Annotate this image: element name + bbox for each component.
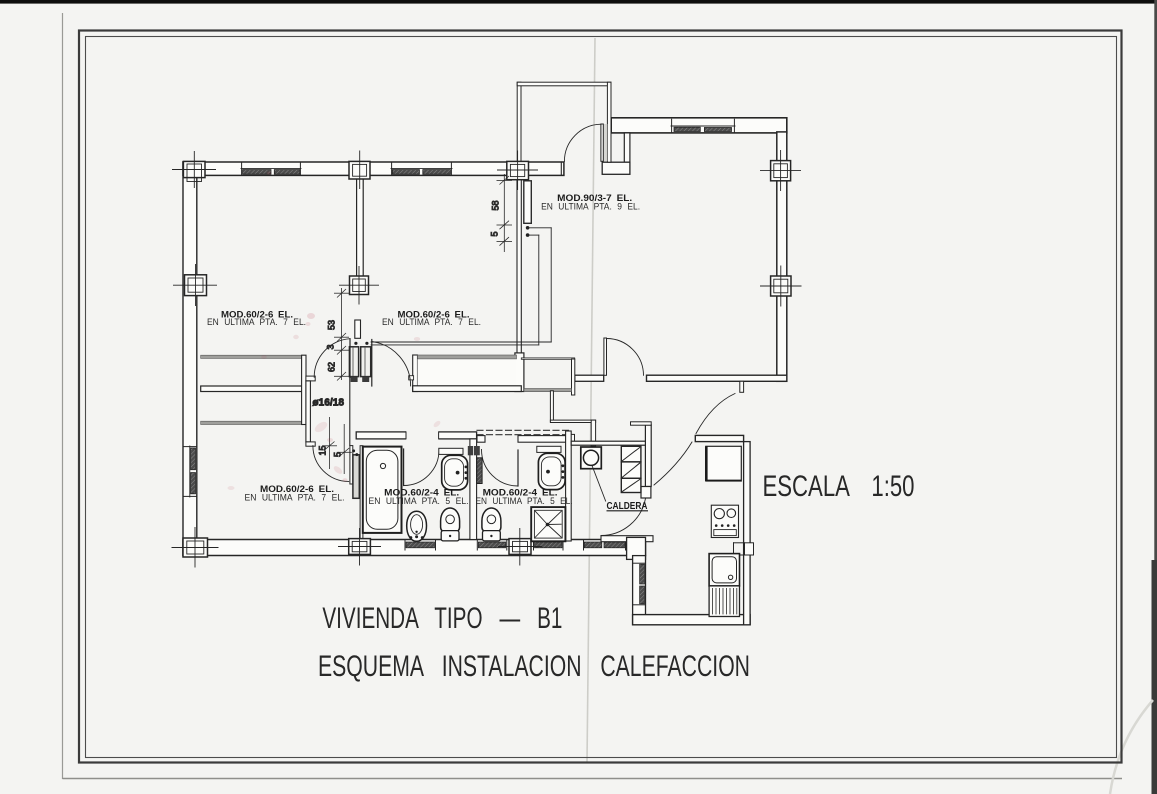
- svg-text:5: 5: [333, 452, 343, 457]
- svg-text:EN ULTIMA PTA. 7 EL.: EN ULTIMA PTA. 7 EL.: [382, 317, 481, 328]
- svg-text:62: 62: [327, 362, 337, 372]
- svg-text:3: 3: [326, 344, 336, 349]
- svg-text:ø16/18: ø16/18: [313, 398, 345, 409]
- svg-text:VIVIENDA TIPO — B1: VIVIENDA TIPO — B1: [322, 602, 562, 635]
- svg-text:EN ULTIMA PTA. 9 EL.: EN ULTIMA PTA. 9 EL.: [541, 201, 640, 212]
- svg-text:EN ULTIMA PTA. 5 EL.: EN ULTIMA PTA. 5 EL.: [476, 496, 573, 507]
- svg-text:EN ULTIMA PTA. 5 EL.: EN ULTIMA PTA. 5 EL.: [369, 496, 469, 507]
- svg-text:ESQUEMA INSTALACION CALEFACCIO: ESQUEMA INSTALACION CALEFACCION: [318, 650, 750, 683]
- svg-text:CALDERA: CALDERA: [607, 500, 648, 512]
- svg-text:EN ULTIMA PTA. 7 EL.: EN ULTIMA PTA. 7 EL.: [245, 493, 345, 504]
- svg-text:EN ULTIMA PTA. 7 EL.: EN ULTIMA PTA. 7 EL.: [207, 317, 306, 328]
- svg-text:ESCALA 1:50: ESCALA 1:50: [763, 470, 915, 503]
- svg-text:58: 58: [491, 200, 501, 210]
- svg-text:15: 15: [318, 445, 328, 455]
- svg-text:5: 5: [490, 231, 500, 236]
- svg-text:53: 53: [327, 320, 337, 330]
